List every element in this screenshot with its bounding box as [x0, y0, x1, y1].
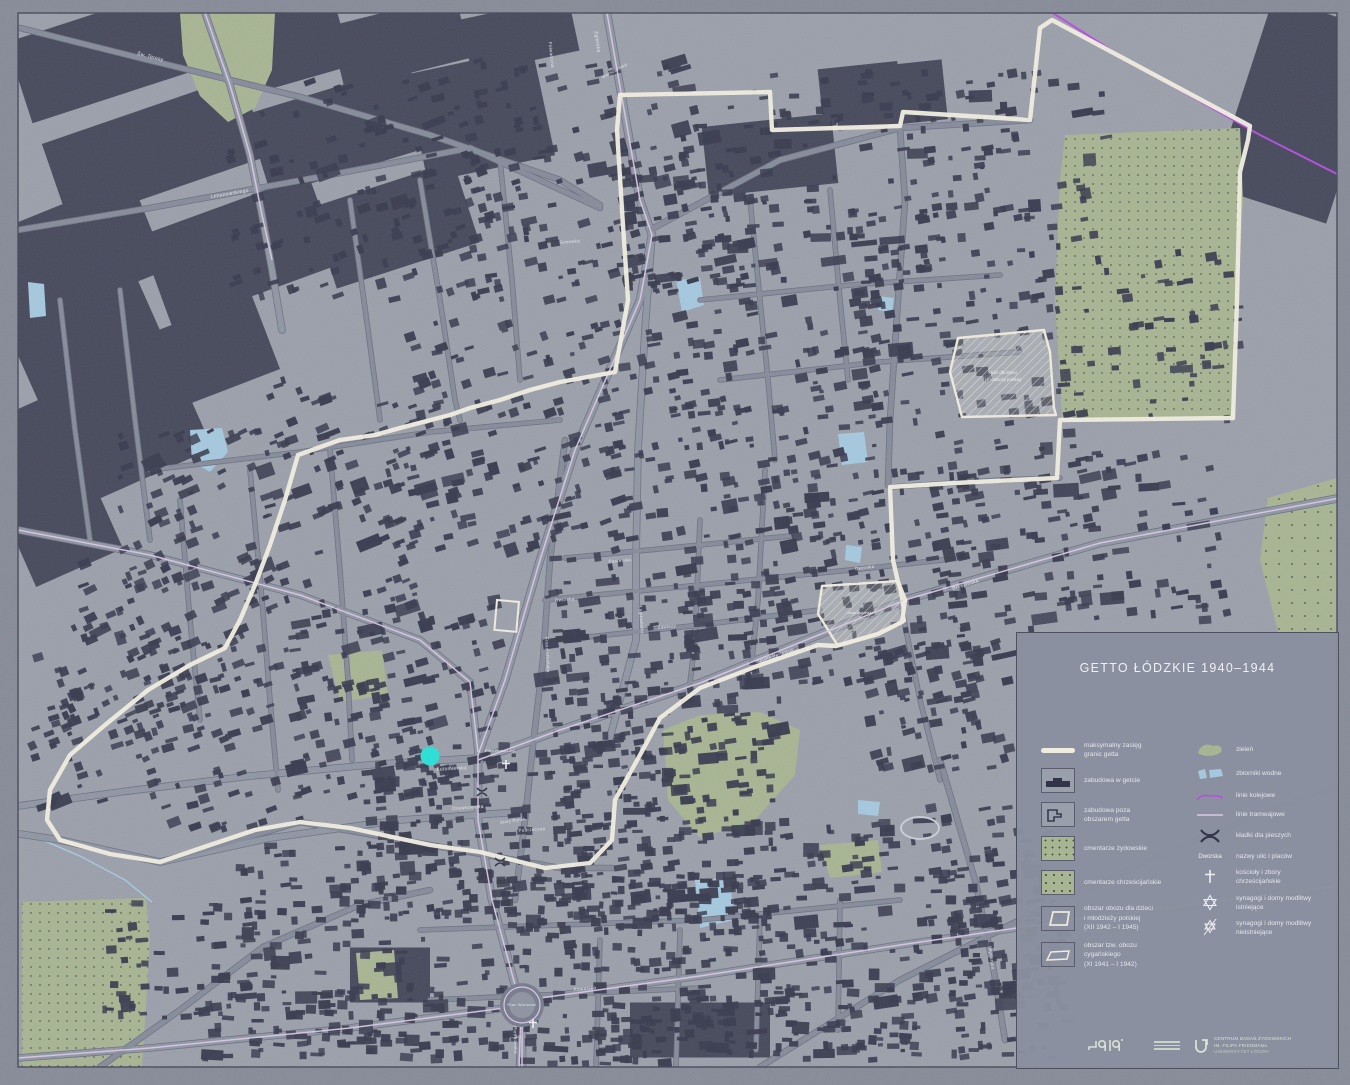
ghetto-buildings-swatch [1041, 768, 1075, 793]
water-swatch [1193, 766, 1227, 782]
jewish-cemetery-swatch [1041, 836, 1075, 861]
legend-item-synagogues-existing: synagogi i domy modlitwy istniejące [1193, 894, 1335, 912]
legend-item-synagogues-former: synagogi i domy modlitwy nieistniejące [1193, 919, 1335, 937]
boundary-line-swatch [1041, 748, 1075, 753]
legend-item-street-names: Dworska nazwy ulic i placów [1193, 852, 1335, 861]
children-camp-swatch [1041, 906, 1075, 931]
legend-item-water: zbiorniki wodne [1193, 766, 1335, 782]
partner-logo-text-lines [1154, 1041, 1180, 1050]
legend-item-children-camp: obszar obozu dla dzieci i młodzieży pols… [1041, 904, 1193, 932]
tram-line-swatch [1193, 810, 1227, 820]
greenery-swatch [1193, 741, 1227, 759]
legend-item-jewish-cemetery: cmentarze żydowskie [1041, 836, 1193, 861]
gypsy-camp-swatch [1041, 942, 1075, 967]
legend-panel: GETTO ŁÓDZKIE 1940–1944 maksymalny zasię… [1016, 632, 1339, 1069]
credits: CENTRUM BADAŃ ŻYDOWSKICH IM. FILIPA FRIE… [1087, 1036, 1291, 1055]
church-cross-icon [1193, 868, 1227, 886]
synagogue-existing-icon [1193, 894, 1227, 912]
partner-logo-hebrew [1087, 1037, 1149, 1054]
legend-item-built-outside: zabudowa poza obszarem getta [1041, 802, 1193, 827]
legend-item-gypsy-camp: obszar tzw. obozu cygańskiego (XI 1941 –… [1041, 941, 1193, 969]
legend-column-left: maksymalny zasięg granic getta zabudowa … [1041, 741, 1193, 969]
christian-cemetery-swatch [1041, 870, 1075, 895]
map-page: Św. TeresyZgierskaFolwarcznaWarszawskaSz… [0, 0, 1350, 1085]
street-name-sample: Dworska [1193, 854, 1227, 860]
university-logo-mark [1194, 1038, 1209, 1053]
legend-column-right: zieleń zbiorniki wodne linie kolejowe li… [1193, 741, 1335, 938]
legend-item-built-in-ghetto: zabudowa w getcie [1041, 768, 1193, 793]
outside-buildings-swatch [1041, 802, 1075, 827]
legend-item-christian-cemetery: cmentarze chrześcijańskie [1041, 870, 1193, 895]
legend-item-footbridge: kładki dla pieszych [1193, 827, 1335, 845]
university-logo-text: CENTRUM BADAŃ ŻYDOWSKICH IM. FILIPA FRIE… [1214, 1036, 1291, 1055]
legend-item-boundary: maksymalny zasięg granic getta [1041, 741, 1193, 759]
legend-title: GETTO ŁÓDZKIE 1940–1944 [1017, 661, 1338, 675]
legend-item-railway: linie kolejowe [1193, 789, 1335, 803]
legend-item-greenery: zieleń [1193, 741, 1335, 759]
legend-item-tram: linie tramwajowe [1193, 810, 1335, 820]
synagogue-former-icon [1193, 919, 1227, 937]
footbridge-icon [1193, 827, 1227, 845]
legend-item-churches: kościoły i zbory chrześcijańskie [1193, 868, 1335, 886]
railway-line-swatch [1193, 789, 1227, 803]
